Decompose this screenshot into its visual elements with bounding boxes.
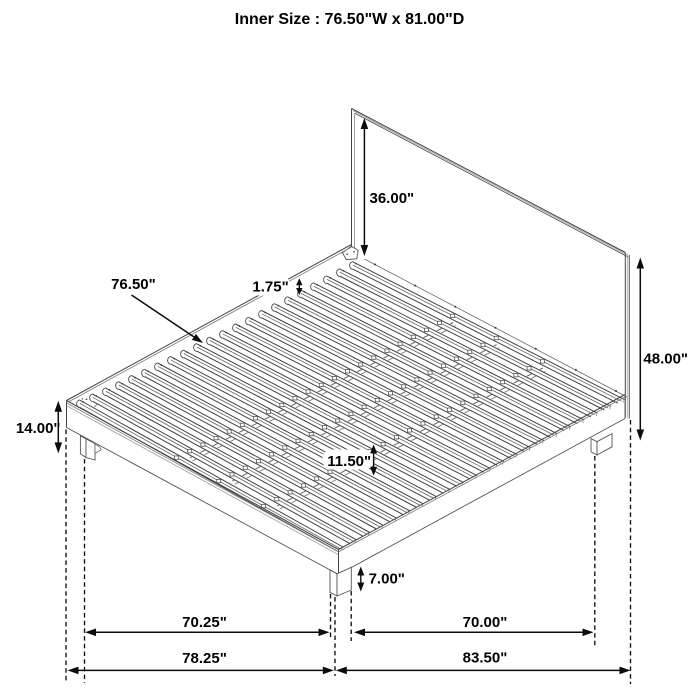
svg-text:70.25": 70.25" <box>182 614 227 631</box>
svg-text:76.50": 76.50" <box>111 276 156 293</box>
svg-text:78.25": 78.25" <box>182 650 227 667</box>
svg-text:1.75": 1.75" <box>252 278 288 295</box>
svg-text:14.00": 14.00" <box>16 420 61 437</box>
svg-text:48.00": 48.00" <box>643 350 688 367</box>
svg-text:7.00": 7.00" <box>369 570 405 587</box>
svg-text:36.00": 36.00" <box>370 190 415 207</box>
svg-text:Inner Size : 76.50"W x 81.00"D: Inner Size : 76.50"W x 81.00"D <box>235 11 465 28</box>
svg-text:83.50": 83.50" <box>463 650 508 667</box>
svg-text:11.50": 11.50" <box>327 453 371 470</box>
svg-text:70.00": 70.00" <box>463 614 508 631</box>
